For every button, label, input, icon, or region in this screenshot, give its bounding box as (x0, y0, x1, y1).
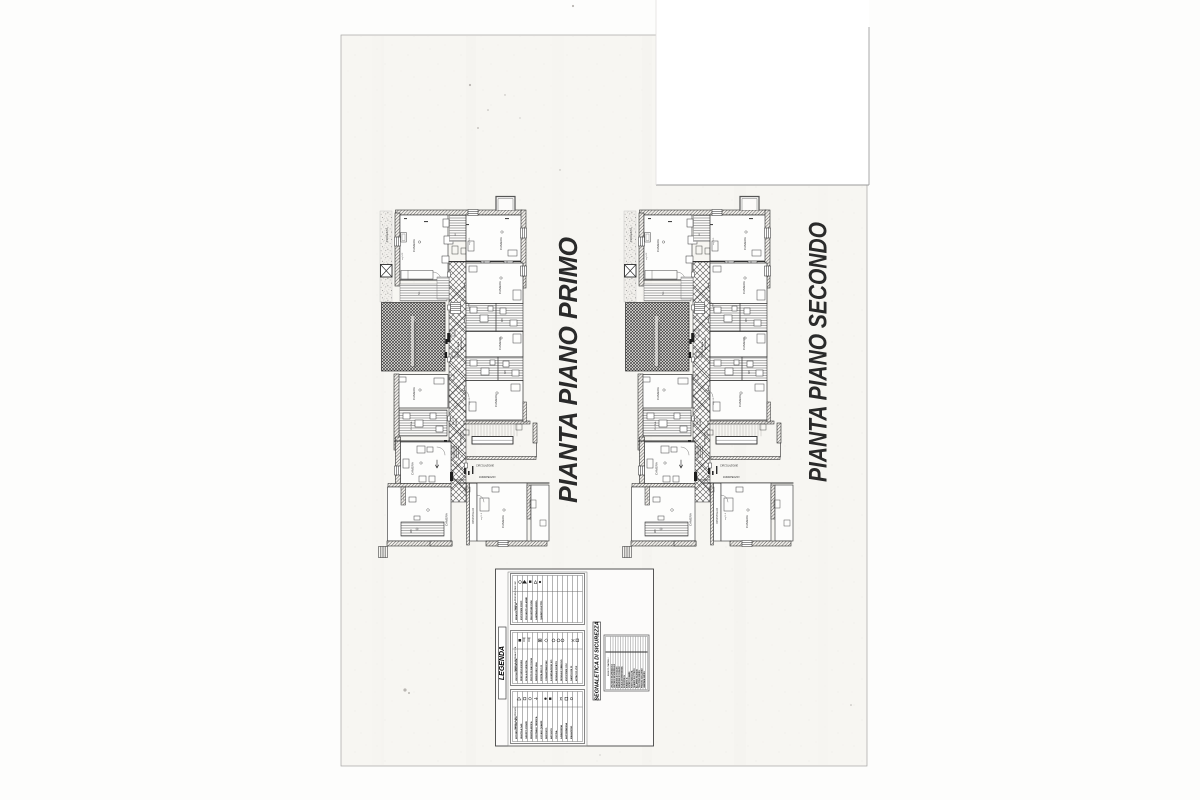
svg-text:CENTRALE TERMICA: CENTRALE TERMICA (535, 716, 538, 739)
svg-text:MAGAZZINO: MAGAZZINO (570, 725, 573, 739)
svg-text:PUNTO DI RACCOLTA: PUNTO DI RACCOLTA (530, 658, 533, 681)
svg-text:PERCORSO ESODO: PERCORSO ESODO (521, 660, 523, 681)
svg-text:LOCALE QUADRI: LOCALE QUADRI (540, 720, 543, 739)
svg-text:DEPOSITO: DEPOSITO (546, 727, 548, 739)
svg-text:INTERRUTTORE GEN.: INTERRUTTORE GEN. (516, 716, 518, 739)
svg-text:GRUPPO POMPE: GRUPPO POMPE (526, 720, 528, 739)
svg-text:COMPARTIMENTAZ.: COMPARTIMENTAZ. (545, 660, 548, 681)
svg-text:LAVANDERIA: LAVANDERIA (560, 725, 563, 739)
svg-text:LAMPADA EMERG.: LAMPADA EMERG. (643, 670, 646, 688)
svg-text:LEGENDA: LEGENDA (499, 646, 506, 680)
svg-text:SEGNALE DIVIETO: SEGNALE DIVIETO (555, 661, 558, 681)
svg-text:CUCINA: CUCINA (555, 730, 558, 739)
svg-text:RILEVATORE FUMI: RILEVATORE FUMI (530, 600, 533, 620)
svg-text:RISERVA IDRICA: RISERVA IDRICA (530, 721, 533, 739)
svg-text:IDRANTE UNI 45: IDRANTE UNI 45 (515, 602, 518, 620)
svg-text:LAMPADA EMERG.: LAMPADA EMERG. (535, 600, 538, 620)
svg-text:VALVOLA GAS: VALVOLA GAS (520, 723, 523, 739)
svg-text:SEGNALE OBBLIGO: SEGNALE OBBLIGO (560, 659, 563, 681)
svg-text:PORTA REI 120: PORTA REI 120 (540, 664, 543, 681)
svg-text:ESTINTORE CO2: ESTINTORE CO2 (566, 663, 568, 681)
svg-text:ILLUMINAZIONE SIC.: ILLUMINAZIONE SIC. (550, 659, 553, 681)
svg-text:SEGNALETICA DI SICUREZZA: SEGNALETICA DI SICUREZZA (595, 621, 601, 700)
svg-text:NASPO UNI 25: NASPO UNI 25 (570, 665, 573, 681)
svg-text:ATTACCO VVF: ATTACCO VVF (575, 665, 578, 681)
svg-text:SCALA SICUREZZA: SCALA SICUREZZA (525, 660, 528, 681)
svg-text:ELENCO CARTELLI: ELENCO CARTELLI (607, 657, 610, 676)
svg-text:USCITA EMERGENZA: USCITA EMERGENZA (515, 658, 518, 681)
svg-text:ESTINTORE PORT.: ESTINTORE PORT. (521, 600, 523, 620)
svg-text:AUTORIMESSA: AUTORIMESSA (565, 722, 568, 739)
svg-text:PIANTA PIANO PRIMO: PIANTA PIANO PRIMO (553, 237, 583, 503)
svg-text:DIREZIONE FUGA: DIREZIONE FUGA (535, 662, 538, 681)
svg-text:ARCHIVIO: ARCHIVIO (550, 728, 553, 739)
svg-text:PULSANTE ALLARME: PULSANTE ALLARME (525, 596, 528, 620)
svg-text:QUADRO ELETTR.: QUADRO ELETTR. (540, 600, 543, 620)
svg-text:PIANTA PIANO SECONDO: PIANTA PIANO SECONDO (805, 222, 833, 482)
